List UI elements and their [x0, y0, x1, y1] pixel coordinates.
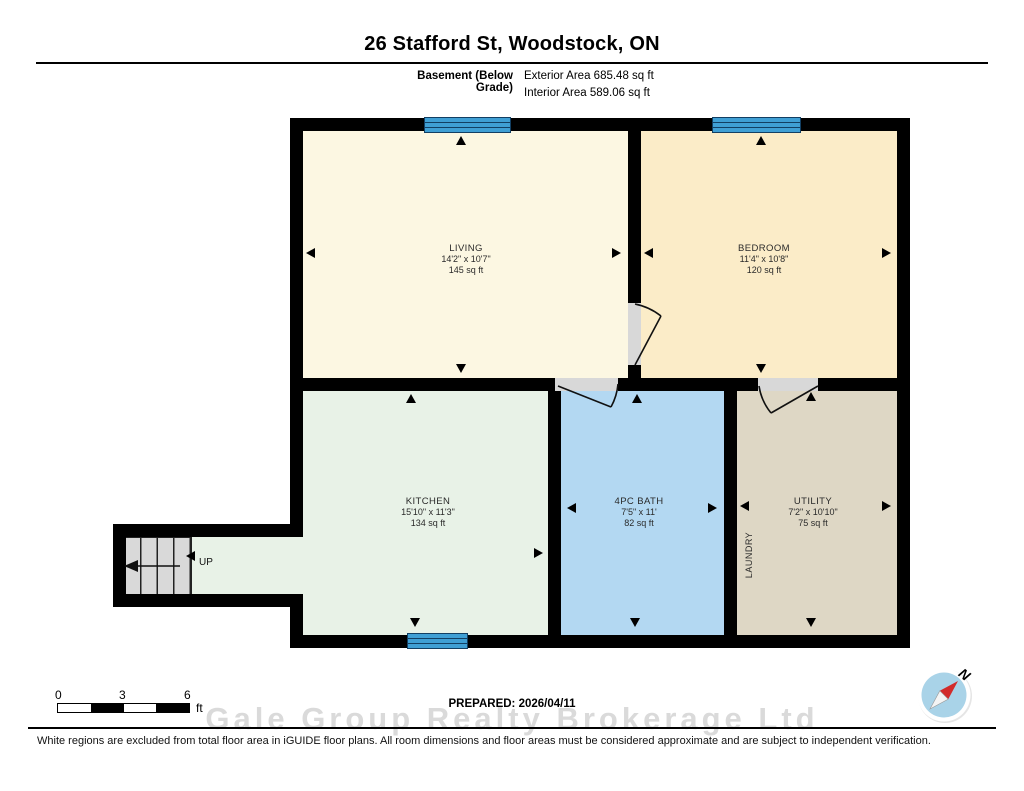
window-icon-bedroom — [712, 117, 801, 133]
wall-bedroom-utility — [818, 378, 897, 391]
dimension-arrow-icon — [456, 364, 466, 373]
dimension-arrow-icon — [708, 503, 717, 513]
dimension-arrow-icon — [567, 503, 576, 513]
room-area: 145 sq ft — [386, 265, 546, 276]
room-label-living: LIVING 14'2" x 10'7" 145 sq ft — [386, 243, 546, 276]
room-name: LIVING — [386, 243, 546, 254]
room-name: UTILITY — [733, 496, 893, 507]
north-compass-icon: N — [908, 661, 982, 727]
room-dimensions: 7'2" x 10'10" — [733, 507, 893, 518]
exterior-area-text: Exterior Area 685.48 sq ft — [524, 70, 654, 82]
room-label-kitchen: KITCHEN 15'10" x 11'3" 134 sq ft — [348, 496, 508, 529]
floor-plan-page: 26 Stafford St, Woodstock, ON Basement (… — [0, 0, 1024, 791]
utility-door-opening — [758, 378, 818, 391]
dimension-arrow-icon — [406, 394, 416, 403]
dimension-arrow-icon — [644, 248, 653, 258]
room-name: KITCHEN — [348, 496, 508, 507]
wall-living-bedroom — [628, 131, 641, 303]
room-dimensions: 11'4" x 10'8" — [684, 254, 844, 265]
dimension-arrow-icon — [806, 618, 816, 627]
interior-area-text: Interior Area 589.06 sq ft — [524, 87, 650, 99]
room-dimensions: 7'5" x 11' — [559, 507, 719, 518]
wall-bottom — [290, 635, 910, 648]
dimension-arrow-icon — [410, 618, 420, 627]
dimension-arrow-icon — [630, 618, 640, 627]
wall-mid-horizontal — [618, 378, 758, 391]
dimension-arrow-icon — [882, 248, 891, 258]
wall-left-upper — [290, 118, 303, 537]
dimension-arrow-icon — [740, 501, 749, 511]
window-icon-living — [424, 117, 511, 133]
room-dimensions: 15'10" x 11'3" — [348, 507, 508, 518]
dimension-arrow-icon — [186, 551, 195, 561]
stairs-up-label: UP — [199, 557, 213, 568]
prepared-date: PREPARED: 2026/04/11 — [0, 698, 1024, 710]
bedroom-door-opening — [628, 303, 641, 365]
dimension-arrow-icon — [806, 392, 816, 401]
wall-extension-top — [113, 524, 303, 537]
disclaimer-text: White regions are excluded from total fl… — [37, 735, 997, 747]
room-label-bedroom: BEDROOM 11'4" x 10'8" 120 sq ft — [684, 243, 844, 276]
dimension-arrow-icon — [882, 501, 891, 511]
room-name: 4PC BATH — [559, 496, 719, 507]
floor-name-label: Basement (Below Grade) — [386, 70, 513, 94]
room-dimensions: 14'2" x 10'7" — [386, 254, 546, 265]
wall-extension-bottom — [113, 594, 303, 607]
dimension-arrow-icon — [632, 394, 642, 403]
bath-door-opening — [555, 378, 618, 391]
room-area: 134 sq ft — [348, 518, 508, 529]
dimension-arrow-icon — [756, 136, 766, 145]
laundry-label: LAUNDRY — [719, 525, 779, 585]
footer-divider — [28, 727, 996, 729]
room-area: 120 sq ft — [684, 265, 844, 276]
dimension-arrow-icon — [756, 364, 766, 373]
dimension-arrow-icon — [456, 136, 466, 145]
page-title: 26 Stafford St, Woodstock, ON — [0, 33, 1024, 56]
dimension-arrow-icon — [306, 248, 315, 258]
wall-right — [897, 118, 910, 648]
room-area: 82 sq ft — [559, 518, 719, 529]
wall-living-kitchen — [303, 378, 555, 391]
wall-top — [290, 118, 910, 131]
stairs-icon — [124, 537, 192, 596]
title-divider — [36, 62, 988, 64]
window-icon-kitchen — [407, 633, 468, 649]
room-label-bath: 4PC BATH 7'5" x 11' 82 sq ft — [559, 496, 719, 529]
room-name: BEDROOM — [684, 243, 844, 254]
dimension-arrow-icon — [534, 548, 543, 558]
dimension-arrow-icon — [612, 248, 621, 258]
